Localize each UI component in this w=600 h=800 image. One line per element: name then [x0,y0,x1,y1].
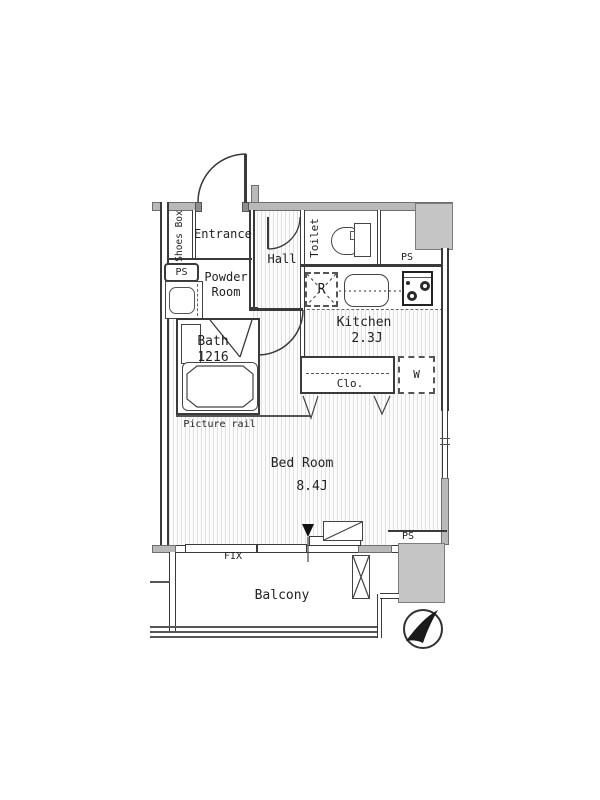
door-post-right [242,202,249,212]
kitchen-sink [344,274,389,307]
ac-unit-box [352,555,370,599]
washer-label: W [398,369,435,380]
ps-bottom-right-label: PS [390,532,426,542]
window-pane [257,544,307,553]
washbasin-bowl [169,287,195,314]
bath-label-2: 1216 [183,351,243,364]
toilet-label: Toilet [309,210,321,266]
vent-pipe [251,185,259,203]
balcony-rail-line [150,631,380,633]
shoes-box-label: Shoes Box [175,206,187,266]
closet-pole-dash [306,373,389,374]
entrance-door-arc [198,154,246,202]
toilet-tank [354,223,371,257]
wall-toilet-right [377,210,381,266]
wall-right-upper [441,248,449,411]
balcony-left-wall [169,552,176,632]
washbasin-dash [197,284,198,316]
ps-left-label: PS [164,268,199,278]
balcony-rail-step-v [377,594,382,638]
shaft-bottom-right [398,543,445,603]
window-right-tick [440,438,450,439]
closet-label: Clo. [320,378,380,389]
window-right-tick [440,444,450,445]
wall-bottom-gray-right [358,545,392,553]
toilet-door-leaf [267,217,269,249]
stove-burner [407,291,417,301]
floor-plan: Shoes Box Entrance Hall Toilet PS Powder… [0,0,600,800]
picture-rail-line [176,415,310,417]
stove-knob [406,281,410,285]
balcony-rail-line [150,636,380,638]
hall-door-leaf [258,308,303,311]
stove-burner [420,281,430,291]
shaft-top-right [415,203,453,250]
north-arrow [403,609,443,649]
bedroom-name-label: Bed Room [262,457,342,470]
window-step [323,521,363,541]
wall-right-lower [441,478,449,545]
ps-top-right-label: PS [389,253,425,263]
toilet-handle [350,231,355,240]
powder-room-label-1: Powder [200,271,252,283]
wall-left [160,202,169,553]
balcony-label: Balcony [242,589,322,602]
refrigerator-label: R [305,283,338,296]
wall-toilet-bottom [300,264,443,267]
entrance-door-leaf [244,154,247,203]
kitchen-size-label: 2.3J [332,332,402,345]
balcony-rail-step-h [380,593,399,599]
stove-top-line [404,277,431,278]
bath-label-1: Bath [183,335,243,348]
door-post-left [195,202,202,212]
balcony-rail-line [150,626,380,628]
hall-label: Hall [260,253,304,265]
window-right [442,411,448,481]
neighbor-line [150,581,170,583]
powder-room-label-2: Room [200,286,252,298]
entrance-label: Entrance [194,228,248,240]
bedroom-size-label: 8.4J [277,480,347,493]
kitchen-name-label: Kitchen [324,316,404,329]
bathtub [182,362,258,411]
fix-window-label: FIX [215,552,251,562]
picture-rail-label: Picture rail [177,420,262,430]
wall-hall-bottom-stub [249,307,258,311]
